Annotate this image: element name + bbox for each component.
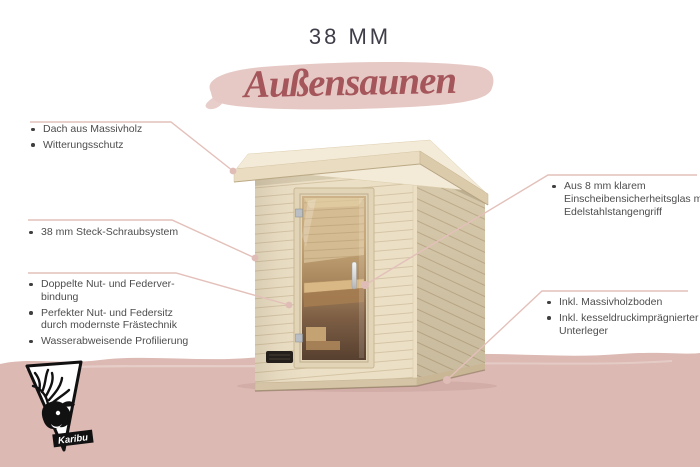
callout-item: Doppelte Nut- und Federver­bindung <box>28 278 190 304</box>
callout-dot <box>252 255 259 262</box>
callout-wall-system: 38 mm Steck-Schraubsystem <box>28 226 223 242</box>
callout-item: Witterungsschutz <box>30 139 205 152</box>
callout-dot <box>286 302 293 309</box>
callout-planks: Doppelte Nut- und Federver­bindung Perfe… <box>28 278 190 351</box>
callout-roof: Dach aus Massivholz Witterungsschutz <box>30 123 205 155</box>
callout-item: Dach aus Massivholz <box>30 123 205 136</box>
callout-dot <box>443 376 451 384</box>
callout-item: Aus 8 mm klarem Einscheiben­sicherheitsg… <box>551 180 700 218</box>
callout-dot <box>361 281 369 289</box>
callout-item: 38 mm Steck-Schraubsystem <box>28 226 223 239</box>
karibu-logo: Karibu <box>18 358 120 463</box>
callout-item: Inkl. kesseldruckimprägnierter Unterlege… <box>546 312 700 338</box>
page-title: Außensaunen <box>200 57 501 108</box>
callout-floor: Inkl. Massivholzboden Inkl. kesseldrucki… <box>546 296 700 340</box>
thickness-label: 38 MM <box>0 24 700 50</box>
callout-item: Inkl. Massivholzboden <box>546 296 700 309</box>
callout-item: Wasserabweisende Profilierung <box>28 335 190 348</box>
callout-door: Aus 8 mm klarem Einscheiben­sicherheitsg… <box>551 180 700 221</box>
callout-dot <box>230 168 237 175</box>
infographic-canvas: 38 MM Außensaunen Dach aus Massivholz Wi… <box>0 0 700 467</box>
callout-item: Perfekter Nut- und Federsitz durch moder… <box>28 307 190 333</box>
brand-text: Karibu <box>57 432 88 447</box>
